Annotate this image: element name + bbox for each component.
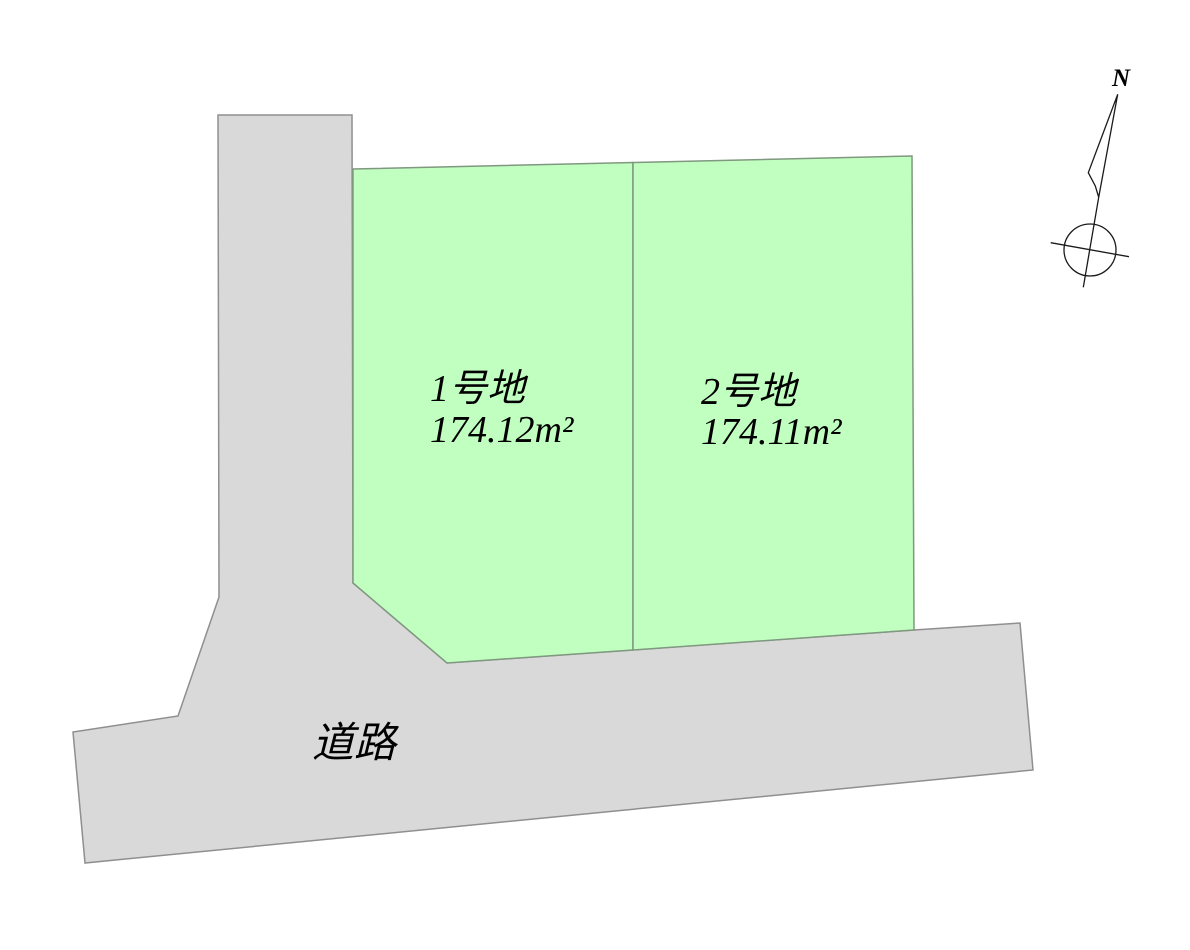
compass-axis-line xyxy=(1083,197,1098,287)
north-label: N xyxy=(1111,65,1131,92)
road-label: 道路 xyxy=(312,721,399,767)
plot-1-area-value: 174.12m² xyxy=(430,409,574,451)
plot-2-name-label: 2号地 xyxy=(701,371,800,413)
plot-1-name-label: 1号地 xyxy=(430,368,529,410)
site-plan-canvas: 1号地 174.12m² 2号地 174.11m² 道路 N xyxy=(0,0,1190,950)
plot-2-area-value: 174.11m² xyxy=(701,411,842,453)
north-arrow-icon xyxy=(1088,94,1117,197)
compass-cross-line xyxy=(1051,243,1129,257)
north-compass xyxy=(1051,94,1129,287)
